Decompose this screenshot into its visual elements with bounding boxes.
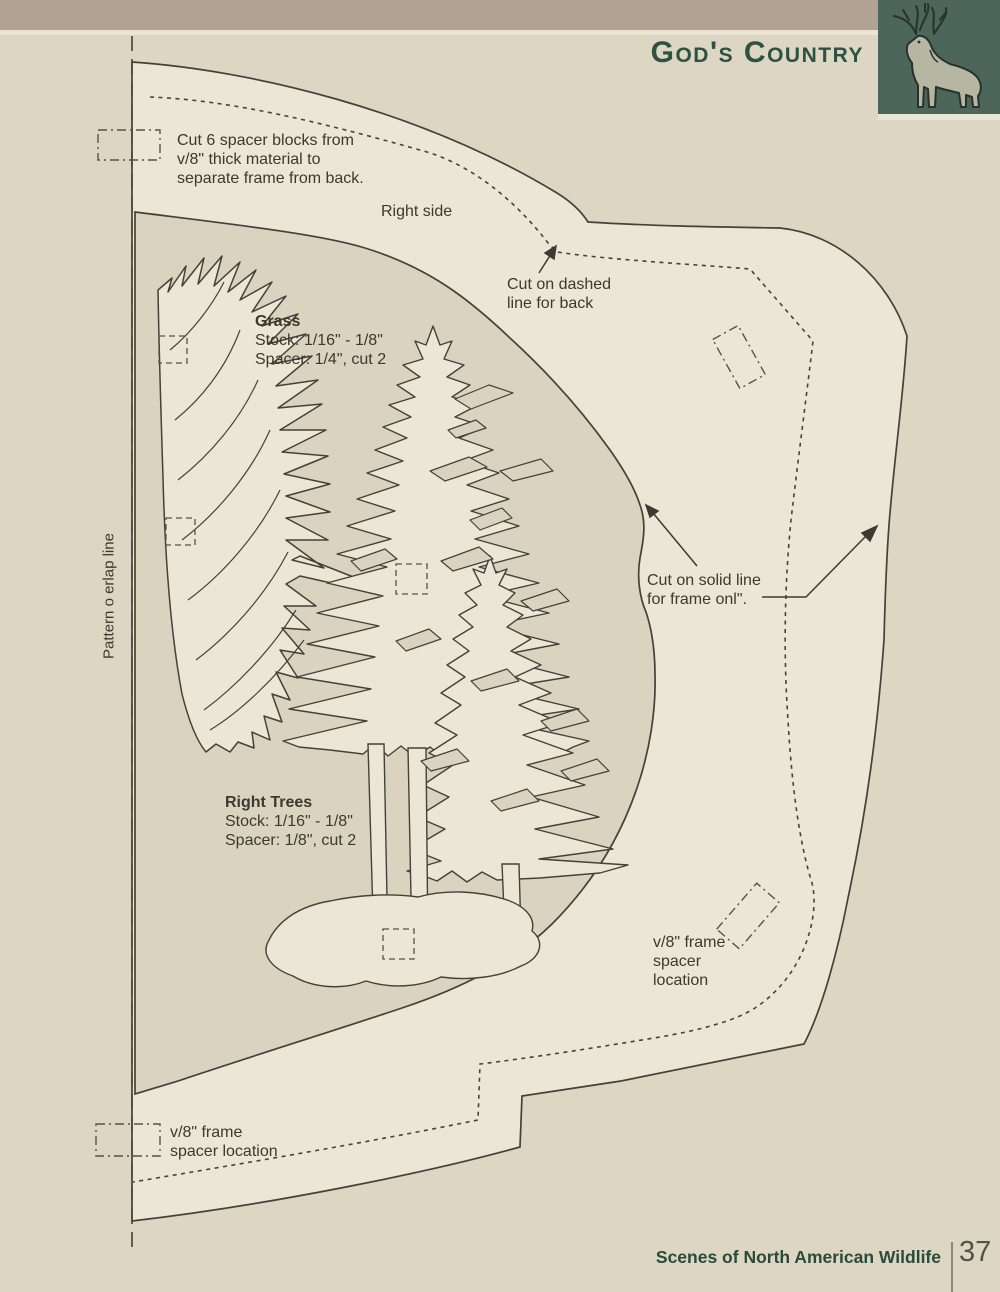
right-trees-stock: Stock: 1/16" - 1/8"	[225, 812, 356, 831]
grass-title: Grass	[255, 312, 386, 331]
note-cut-solid: Cut on solid line for frame onl".	[647, 571, 761, 609]
right-trees-spacer: Spacer: 1/8", cut 2	[225, 831, 356, 850]
footer-divider	[951, 1242, 953, 1292]
pattern-diagram	[0, 0, 1000, 1292]
note-frame-spacer-right: v/8" frame spacer location	[653, 933, 725, 990]
label-grass: Grass Stock: 1/16" - 1/8" Spacer: 1/4", …	[255, 312, 386, 369]
note-cut-dashed: Cut on dashed line for back	[507, 275, 611, 313]
footer-book-title: Scenes of North American Wildlife	[656, 1247, 941, 1268]
label-right-trees: Right Trees Stock: 1/16" - 1/8" Spacer: …	[225, 793, 356, 850]
label-right-side: Right side	[381, 202, 452, 221]
right-trees-title: Right Trees	[225, 793, 356, 812]
grass-spacer: Spacer: 1/4", cut 2	[255, 350, 386, 369]
label-pattern-overlap-line: Pattern o erlap line	[101, 533, 118, 659]
book-page: God's Country	[0, 0, 1000, 1292]
note-spacer-blocks: Cut 6 spacer blocks from v/8" thick mate…	[177, 131, 364, 188]
footer-page-number: 37	[959, 1236, 991, 1269]
note-frame-spacer-bottom-left: v/8" frame spacer location	[170, 1123, 278, 1161]
grass-stock: Stock: 1/16" - 1/8"	[255, 331, 386, 350]
